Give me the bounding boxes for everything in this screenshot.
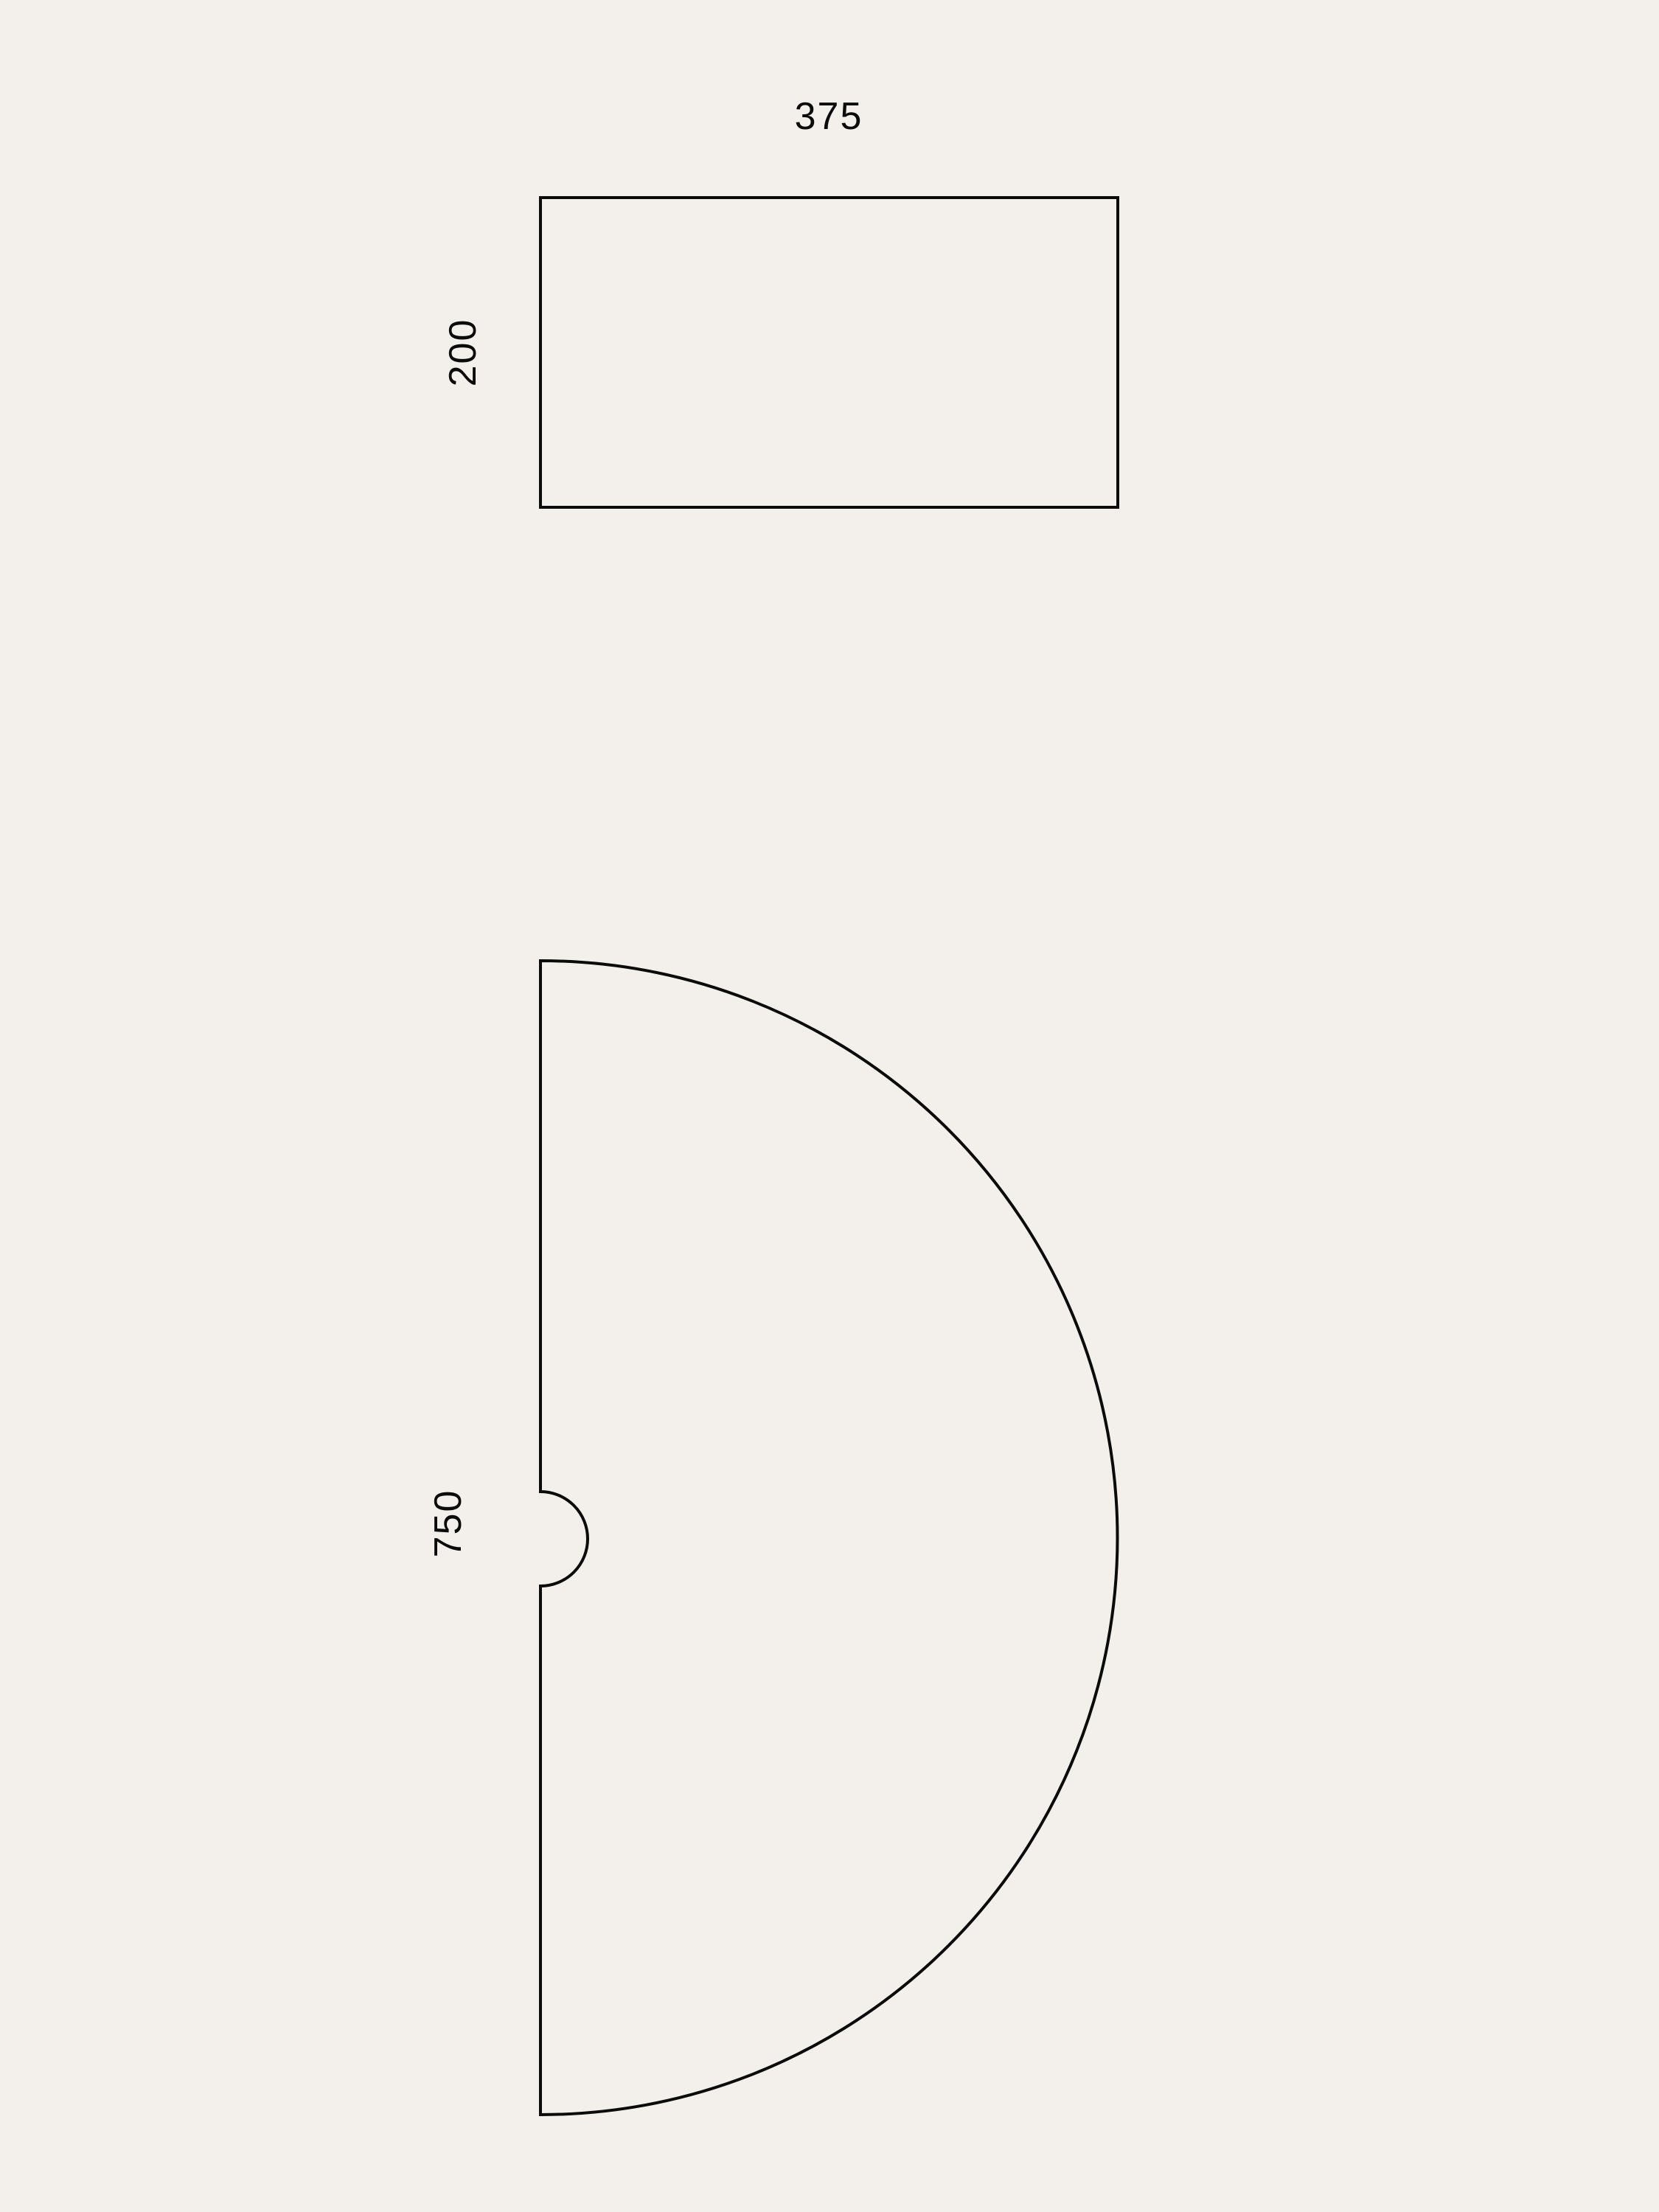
semicircle-outline [540,961,1117,2115]
rect-height-dimension-label: 200 [442,319,484,387]
rectangle-outline [540,198,1118,507]
semicircle-diameter-dimension-label: 750 [427,1489,470,1558]
diagram-canvas: 375 200 750 [0,0,1659,2212]
rect-width-dimension-label: 375 [795,95,863,138]
